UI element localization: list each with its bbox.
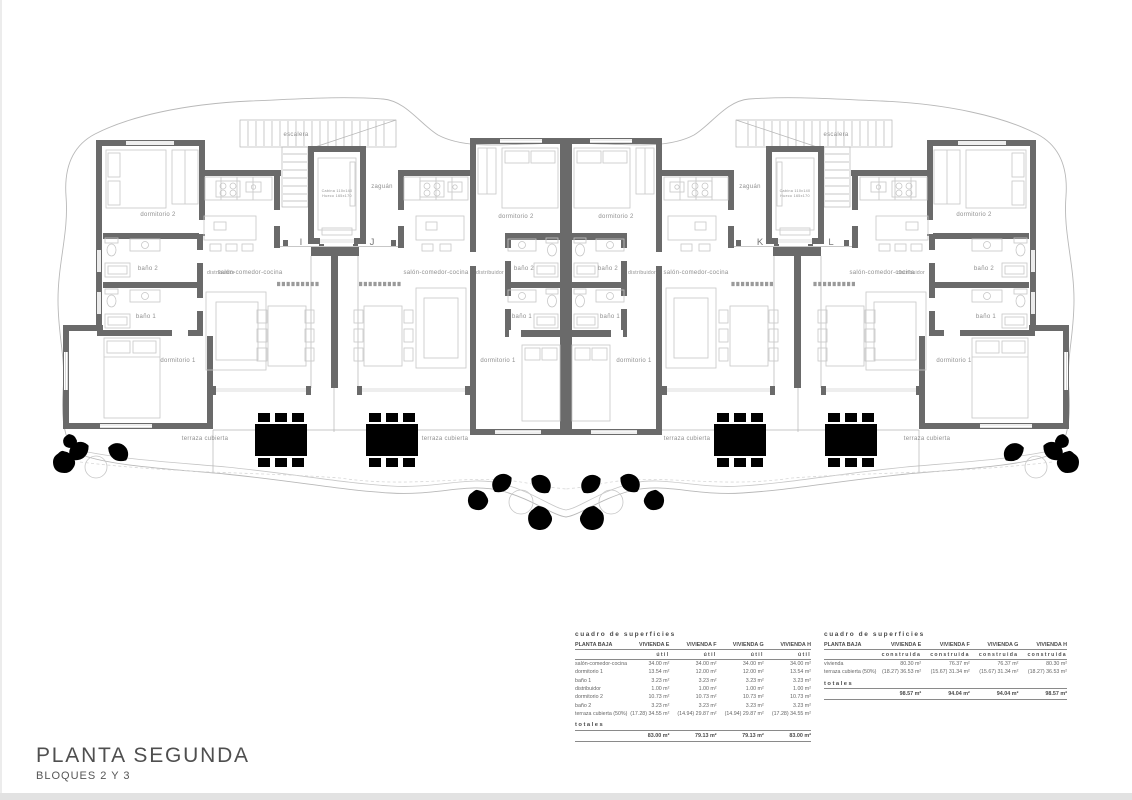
row-label: terraza cubierta (50%) [575, 710, 622, 718]
table-cell [575, 730, 622, 741]
title-block: PLANTA SEGUNDA BLOQUES 2 Y 3 [36, 744, 250, 782]
room-label: baño 1 [976, 314, 997, 320]
row-value: 1.00 m² [717, 685, 764, 693]
row-label: terraza cubierta (50%) [824, 668, 873, 676]
row-value: 1.00 m² [669, 685, 716, 693]
table-column-header: VIVIENDA G [970, 641, 1019, 650]
room-label: salón-comedor-cocina [663, 270, 728, 276]
row-value: 1.00 m² [764, 685, 811, 693]
totals-value: 83.00 m² [764, 730, 811, 741]
unit-letter: J [370, 237, 375, 248]
page-bottom-edge [0, 793, 1132, 800]
row-value: 10.73 m² [717, 693, 764, 701]
row-label: salón-comedor-cocina [575, 659, 622, 668]
row-value: 3.23 m² [669, 702, 716, 710]
area-table-construida: cuadro de superficiesPLANTA BAJAVIVIENDA… [824, 631, 1067, 700]
table-header-row: PLANTA BAJAVIVIENDA EVIVIENDA FVIVIENDA … [575, 641, 811, 650]
table-subheader-cell: construida [970, 650, 1019, 659]
row-value: (15.67) 31.34 m² [970, 668, 1019, 676]
row-value: 34.00 m² [622, 659, 669, 668]
table-title: cuadro de superficies [824, 631, 1067, 638]
row-value: 3.23 m² [717, 702, 764, 710]
table-row: baño 23.23 m²3.23 m²3.23 m²3.23 m² [575, 702, 811, 710]
unit-letter: I [300, 237, 303, 248]
totals-row: 98.57 m²94.04 m²94.04 m²98.57 m² [824, 688, 1067, 699]
room-label: distribuidor [476, 270, 504, 276]
totals-value: 94.04 m² [921, 688, 970, 699]
room-label: dormitorio 2 [140, 212, 176, 218]
table-cell [824, 688, 873, 699]
row-label: baño 2 [575, 702, 622, 710]
room-label: salón-comedor-cocina [217, 270, 282, 276]
room-label: dormitorio 1 [480, 358, 516, 364]
unit-letter: K [757, 237, 764, 248]
room-label: distribuidor [628, 270, 656, 276]
table-column-header: VIVIENDA F [669, 641, 716, 650]
left-block [53, 120, 566, 530]
table-column-header: VIVIENDA E [873, 641, 922, 650]
table-cell [824, 650, 873, 659]
row-value: (18.27) 36.53 m² [1018, 668, 1067, 676]
room-label: Hueco 165x170 [322, 194, 352, 198]
room-label: Cabina 110x140 [322, 189, 353, 193]
bedroom1-furniture-f [522, 345, 560, 421]
table-title: cuadro de superficies [575, 631, 811, 638]
row-value: 80.30 m² [873, 659, 922, 668]
row-value: 80.30 m² [1018, 659, 1067, 668]
row-value: 3.23 m² [764, 677, 811, 685]
totals-value: 98.57 m² [1018, 688, 1067, 699]
room-label: escalera [283, 132, 308, 138]
bedroom2-furniture-e [106, 150, 198, 208]
room-label: baño 1 [136, 314, 157, 320]
totals-value: 79.13 m² [669, 730, 716, 741]
row-value: (17.28) 34.55 m² [622, 710, 669, 718]
totals-value: 79.13 m² [717, 730, 764, 741]
room-label: baño 2 [138, 266, 159, 272]
totals-label: totales [824, 677, 1067, 689]
room-label: terraza cubierta [182, 436, 229, 442]
row-value: 10.73 m² [622, 693, 669, 701]
row-label: baño 1 [575, 677, 622, 685]
table-subheader-cell: útil [669, 650, 716, 659]
table-subheader-row: construidaconstruidaconstruidaconstruida [824, 650, 1067, 659]
room-label: baño 2 [598, 266, 619, 272]
row-value: 3.23 m² [717, 677, 764, 685]
row-value: 34.00 m² [764, 659, 811, 668]
table-column-header: VIVIENDA G [717, 641, 764, 650]
totals-value: 98.57 m² [873, 688, 922, 699]
kitchen-f [404, 177, 468, 251]
totals-label-row: totales [824, 677, 1067, 689]
table-subheader-cell: construida [1018, 650, 1067, 659]
room-label: terraza cubierta [422, 436, 469, 442]
row-value: (15.67) 31.34 m² [921, 668, 970, 676]
row-label: vivienda [824, 659, 873, 668]
table-row: dormitorio 210.73 m²10.73 m²10.73 m²10.7… [575, 693, 811, 701]
room-label: dormitorio 1 [936, 358, 972, 364]
room-label: escalera [823, 132, 848, 138]
table-row: baño 13.23 m²3.23 m²3.23 m²3.23 m² [575, 677, 811, 685]
row-value: 76.37 m² [970, 659, 1019, 668]
table-row: terraza cubierta (50%)(17.28) 34.55 m²(1… [575, 710, 811, 718]
room-label: salón-comedor-cocina [849, 270, 914, 276]
row-value: 1.00 m² [622, 685, 669, 693]
table-column-header: VIVIENDA H [764, 641, 811, 650]
room-label: zaguán [371, 184, 393, 190]
table-row: distribuidor1.00 m²1.00 m²1.00 m²1.00 m² [575, 685, 811, 693]
table-corner-cell: PLANTA BAJA [575, 641, 622, 650]
row-label: distribuidor [575, 685, 622, 693]
row-value: (14.94) 29.87 m² [717, 710, 764, 718]
row-value: 12.00 m² [717, 668, 764, 676]
row-value: 76.37 m² [921, 659, 970, 668]
room-label: Cabina 110x140 [780, 189, 811, 193]
table-column-header: VIVIENDA E [622, 641, 669, 650]
row-value: 13.54 m² [764, 668, 811, 676]
room-label: Hueco 165x170 [780, 194, 810, 198]
room-label: dormitorio 1 [160, 358, 196, 364]
bedroom2-furniture-f [478, 148, 558, 208]
totals-value: 83.00 m² [622, 730, 669, 741]
row-value: 3.23 m² [764, 702, 811, 710]
room-label: dormitorio 2 [956, 212, 992, 218]
table-row: dormitorio 113.54 m²12.00 m²12.00 m²13.5… [575, 668, 811, 676]
room-label: dormitorio 2 [498, 214, 534, 220]
bathroom1-fixtures-f [508, 289, 558, 328]
table-subheader-cell: útil [717, 650, 764, 659]
bathroom1-fixtures-e [105, 289, 160, 328]
room-label: baño 2 [514, 266, 535, 272]
page-subtitle: BLOQUES 2 Y 3 [36, 770, 250, 782]
row-value: (14.94) 29.87 m² [669, 710, 716, 718]
room-label: baño 2 [974, 266, 995, 272]
floorplan-sheet: escaleraescalerazaguánzaguánCabina 110x1… [0, 0, 1132, 800]
room-label: zaguán [739, 184, 761, 190]
table-row: vivienda80.30 m²76.37 m²76.37 m²80.30 m² [824, 659, 1067, 668]
totals-label: totales [575, 718, 811, 730]
right-block [566, 120, 1079, 530]
row-value: 3.23 m² [622, 702, 669, 710]
row-value: 10.73 m² [764, 693, 811, 701]
totals-value: 94.04 m² [970, 688, 1019, 699]
row-label: dormitorio 2 [575, 693, 622, 701]
row-value: 10.73 m² [669, 693, 716, 701]
room-label: terraza cubierta [904, 436, 951, 442]
totals-label-row: totales [575, 718, 811, 730]
room-label: dormitorio 2 [598, 214, 634, 220]
row-label: dormitorio 1 [575, 668, 622, 676]
room-label: salón-comedor-cocina [403, 270, 468, 276]
area-table-util: cuadro de superficiesPLANTA BAJAVIVIENDA… [575, 631, 811, 742]
bedroom1-furniture-e [104, 338, 160, 418]
row-value: 34.00 m² [669, 659, 716, 668]
room-label: baño 1 [512, 314, 533, 320]
table-column-header: VIVIENDA F [921, 641, 970, 650]
totals-row: 83.00 m²79.13 m²79.13 m²83.00 m² [575, 730, 811, 741]
table-corner-cell: PLANTA BAJA [824, 641, 873, 650]
table-row: terraza cubierta (50%)(18.27) 36.53 m²(1… [824, 668, 1067, 676]
unit-letter: L [828, 237, 833, 248]
table-row: salón-comedor-cocina34.00 m²34.00 m²34.0… [575, 659, 811, 668]
row-value: 12.00 m² [669, 668, 716, 676]
living-furniture-e [206, 292, 314, 370]
table-column-header: VIVIENDA H [1018, 641, 1067, 650]
row-value: (17.28) 34.55 m² [764, 710, 811, 718]
area-table: PLANTA BAJAVIVIENDA EVIVIENDA FVIVIENDA … [824, 641, 1067, 700]
table-header-row: PLANTA BAJAVIVIENDA EVIVIENDA FVIVIENDA … [824, 641, 1067, 650]
living-furniture-f [354, 288, 466, 368]
row-value: (18.27) 36.53 m² [873, 668, 922, 676]
table-subheader-row: útilútilútilútil [575, 650, 811, 659]
table-subheader-cell: construida [921, 650, 970, 659]
row-value: 13.54 m² [622, 668, 669, 676]
table-subheader-cell: construida [873, 650, 922, 659]
page-title: PLANTA SEGUNDA [36, 744, 250, 768]
kitchen-e [204, 177, 272, 251]
room-label: terraza cubierta [664, 436, 711, 442]
row-value: 3.23 m² [669, 677, 716, 685]
area-table: PLANTA BAJAVIVIENDA EVIVIENDA FVIVIENDA … [575, 641, 811, 742]
room-label: baño 1 [600, 314, 621, 320]
row-value: 34.00 m² [717, 659, 764, 668]
room-label: dormitorio 1 [616, 358, 652, 364]
table-subheader-cell: útil [764, 650, 811, 659]
table-subheader-cell: útil [622, 650, 669, 659]
table-cell [575, 650, 622, 659]
row-value: 3.23 m² [622, 677, 669, 685]
